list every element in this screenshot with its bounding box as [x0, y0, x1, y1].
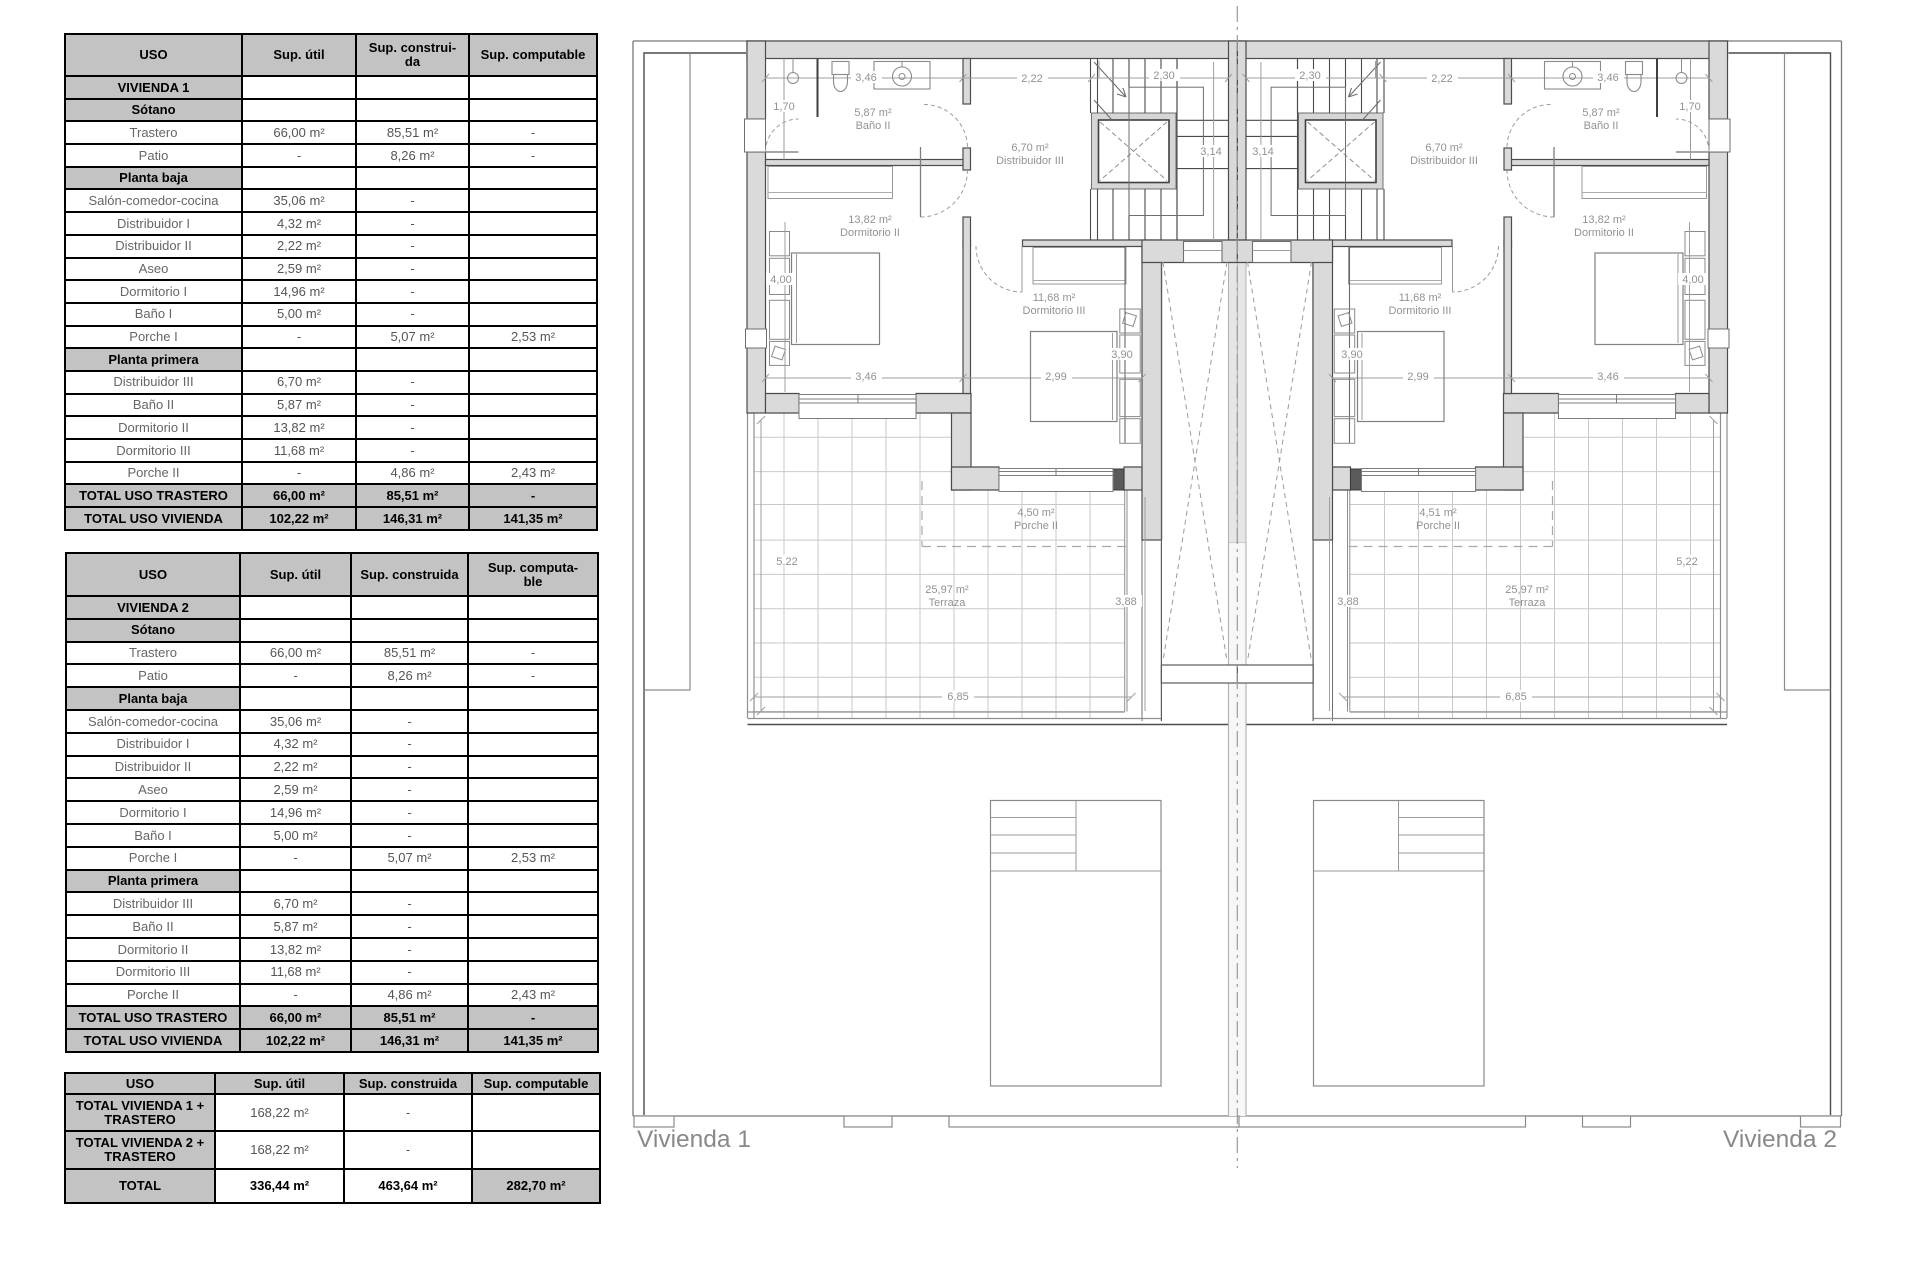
- svg-text:3,90: 3,90: [1111, 349, 1132, 361]
- svg-text:2,99: 2,99: [1045, 371, 1066, 383]
- svg-text:5,22: 5,22: [776, 556, 797, 568]
- svg-text:6,85: 6,85: [947, 691, 968, 703]
- svg-text:3,14: 3,14: [1200, 146, 1221, 158]
- svg-text:25,97 m²: 25,97 m²: [925, 584, 969, 596]
- svg-text:2,22: 2,22: [1021, 73, 1042, 85]
- svg-text:2,30: 2,30: [1299, 70, 1320, 82]
- svg-text:Terraza: Terraza: [1509, 597, 1547, 609]
- svg-text:Distribuidor III: Distribuidor III: [1410, 155, 1478, 167]
- svg-text:Vivienda 2: Vivienda 2: [1723, 1126, 1837, 1153]
- svg-text:Vivienda 1: Vivienda 1: [637, 1126, 751, 1153]
- svg-text:Dormitorio II: Dormitorio II: [840, 227, 900, 239]
- svg-text:Porche II: Porche II: [1014, 520, 1058, 532]
- svg-text:Baño II: Baño II: [1584, 120, 1619, 132]
- svg-text:3,14: 3,14: [1252, 146, 1273, 158]
- svg-text:3,46: 3,46: [1597, 72, 1618, 84]
- svg-text:Porche II: Porche II: [1416, 520, 1460, 532]
- svg-text:2,99: 2,99: [1407, 371, 1428, 383]
- svg-text:2,22: 2,22: [1431, 73, 1452, 85]
- svg-text:5,22: 5,22: [1676, 556, 1697, 568]
- svg-text:Terraza: Terraza: [929, 597, 967, 609]
- svg-text:Dormitorio III: Dormitorio III: [1389, 305, 1452, 317]
- svg-text:25,97 m²: 25,97 m²: [1505, 584, 1549, 596]
- svg-text:Dormitorio II: Dormitorio II: [1574, 227, 1634, 239]
- svg-text:3,88: 3,88: [1337, 596, 1358, 608]
- svg-text:Dormitorio III: Dormitorio III: [1023, 305, 1086, 317]
- svg-text:3,88: 3,88: [1115, 596, 1136, 608]
- svg-text:3,46: 3,46: [855, 371, 876, 383]
- svg-text:1,70: 1,70: [773, 101, 794, 113]
- svg-text:13,82 m²: 13,82 m²: [1582, 214, 1626, 226]
- svg-text:1,70: 1,70: [1679, 101, 1700, 113]
- svg-text:3,46: 3,46: [1597, 371, 1618, 383]
- svg-text:3,90: 3,90: [1341, 349, 1362, 361]
- svg-text:4,00: 4,00: [770, 274, 791, 286]
- svg-text:3,46: 3,46: [855, 72, 876, 84]
- svg-text:2,30: 2,30: [1153, 70, 1174, 82]
- svg-text:Distribuidor III: Distribuidor III: [996, 155, 1064, 167]
- svg-text:4,00: 4,00: [1682, 274, 1703, 286]
- svg-text:6,70 m²: 6,70 m²: [1425, 142, 1463, 154]
- svg-text:13,82 m²: 13,82 m²: [848, 214, 892, 226]
- svg-text:11,68 m²: 11,68 m²: [1033, 292, 1076, 304]
- svg-text:6,70 m²: 6,70 m²: [1011, 142, 1049, 154]
- svg-text:11,68 m²: 11,68 m²: [1399, 292, 1442, 304]
- svg-text:5,87 m²: 5,87 m²: [854, 107, 892, 119]
- svg-text:4,51 m²: 4,51 m²: [1419, 507, 1457, 519]
- svg-text:6,85: 6,85: [1505, 691, 1526, 703]
- svg-text:5,87 m²: 5,87 m²: [1582, 107, 1620, 119]
- svg-text:Baño II: Baño II: [856, 120, 891, 132]
- svg-text:4,50 m²: 4,50 m²: [1017, 507, 1055, 519]
